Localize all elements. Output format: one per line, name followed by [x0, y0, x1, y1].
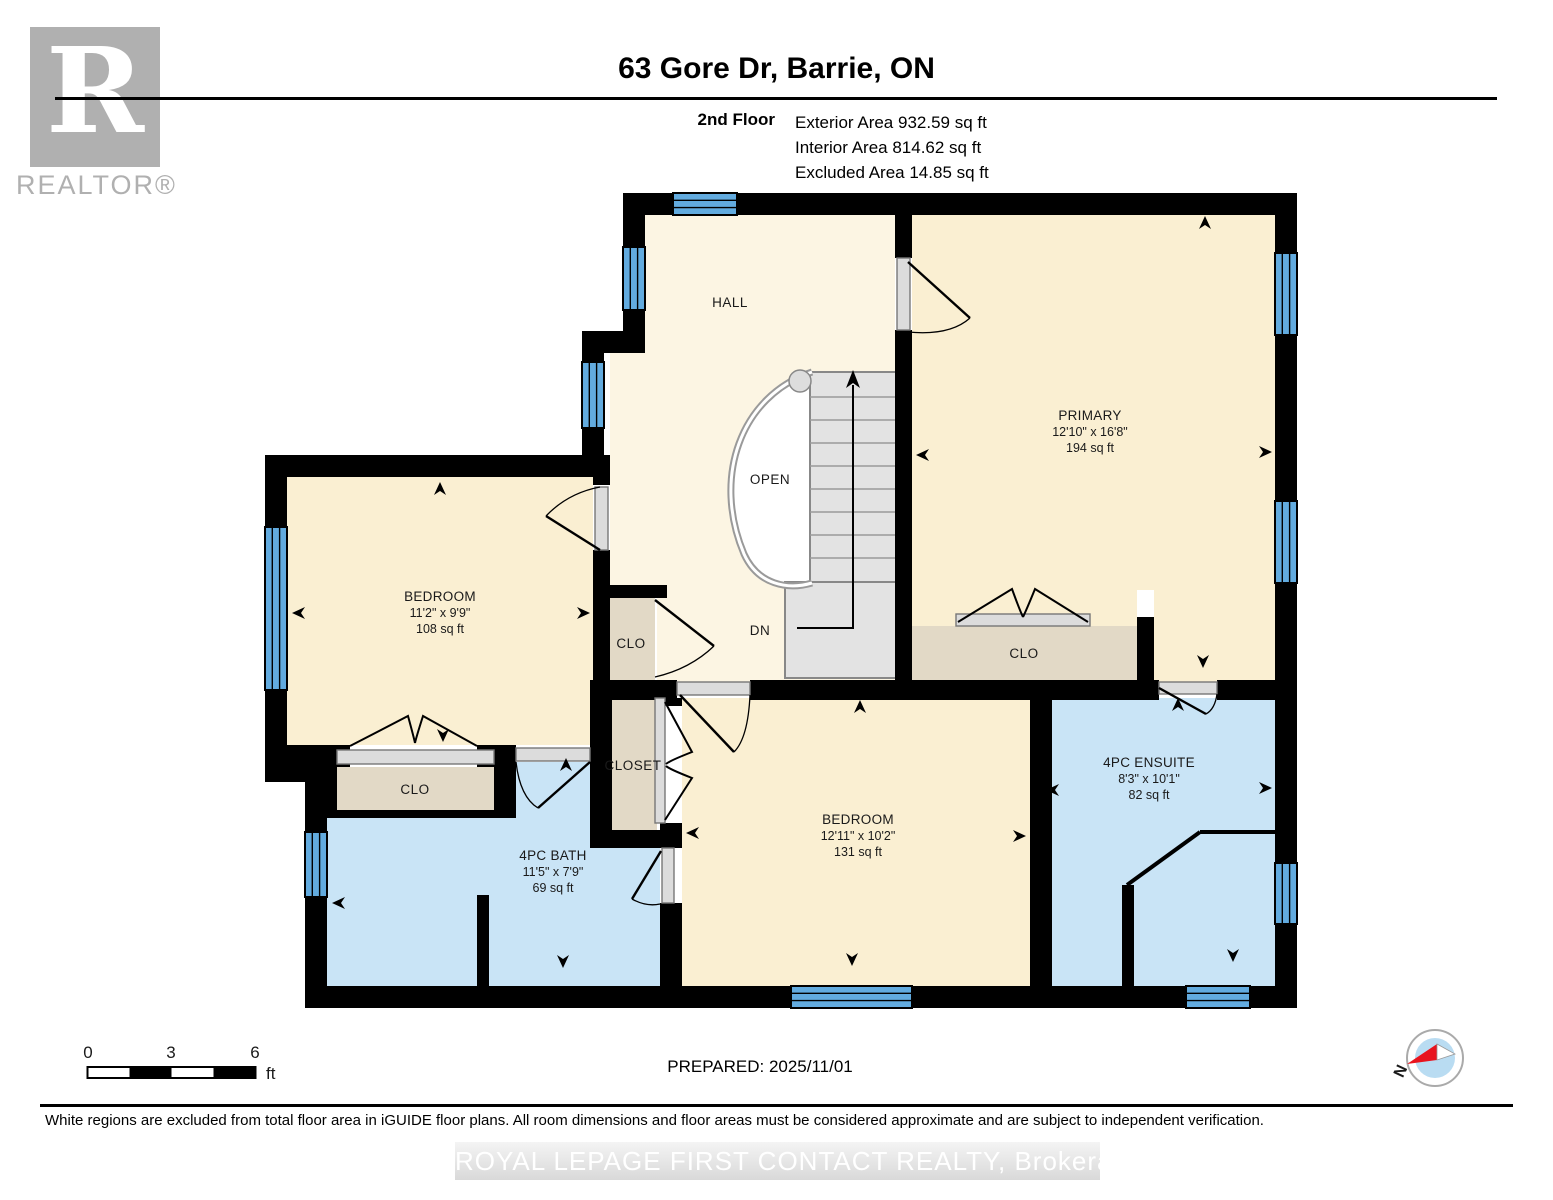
- window: [1275, 501, 1297, 583]
- room-ensuite-area: 82 sq ft: [1129, 788, 1171, 802]
- room-bedroom-left-dims: 11'2" x 9'9": [410, 606, 471, 620]
- page-title: 63 Gore Dr, Barrie, ON: [0, 52, 1553, 86]
- window: [1186, 986, 1250, 1008]
- scale-tick-0: 0: [83, 1043, 92, 1062]
- scale-tick-3: 3: [166, 1043, 175, 1062]
- window: [1275, 253, 1297, 335]
- title-divider: [55, 97, 1497, 100]
- hall-label: HALL: [712, 295, 748, 310]
- clo-left-label: CLO: [400, 782, 429, 797]
- room-bath-area: 69 sq ft: [533, 881, 575, 895]
- closet-label: CLOSET: [604, 758, 661, 773]
- scale-bar: 0 3 6 ft: [80, 1042, 300, 1092]
- disclaimer-text: White regions are excluded from total fl…: [45, 1112, 1515, 1129]
- room-primary-name: PRIMARY: [1058, 408, 1121, 423]
- floor-plan-drawing: HALL OPEN DN PRIMARY 12'10" x 16'8" 194 …: [250, 185, 1300, 1015]
- room-primary-dims: 12'10" x 16'8": [1052, 425, 1128, 439]
- brokerage-watermark: ROYAL LEPAGE FIRST CONTACT REALTY, Broke…: [455, 1142, 1100, 1180]
- floor-label: 2nd Floor: [555, 110, 775, 130]
- room-ensuite-dims: 8'3" x 10'1": [1118, 772, 1180, 786]
- interior-area: Interior Area 814.62 sq ft: [795, 135, 1115, 160]
- room-primary-area: 194 sq ft: [1066, 441, 1114, 455]
- room-ensuite-name: 4PC ENSUITE: [1103, 755, 1195, 770]
- excluded-area: Excluded Area 14.85 sq ft: [795, 160, 1115, 185]
- stair-newel: [789, 370, 811, 392]
- footer-divider: [40, 1104, 1513, 1107]
- window: [305, 832, 327, 897]
- room-bath-floor: [327, 818, 590, 986]
- room-ensuite-floor: [1052, 698, 1275, 986]
- prepared-date: PREPARED: 2025/11/01: [600, 1057, 920, 1077]
- dn-label: DN: [750, 623, 771, 638]
- room-bedroom-left-area: 108 sq ft: [416, 622, 464, 636]
- exterior-area: Exterior Area 932.59 sq ft: [795, 110, 1115, 135]
- clo-center-label: CLO: [616, 636, 645, 651]
- stair-landing: [785, 582, 897, 678]
- window: [673, 193, 737, 215]
- compass-icon: N: [1390, 1015, 1480, 1105]
- room-bedroom-bottom-dims: 12'11" x 10'2": [821, 829, 896, 843]
- room-bedroom-bottom-area: 131 sq ft: [834, 845, 882, 859]
- realtor-logo-text: REALTOR®: [16, 170, 186, 201]
- realtor-logo-r: R: [46, 21, 144, 160]
- floor-plan-page: { "header": { "title": "63 Gore Dr, Barr…: [0, 0, 1553, 1200]
- room-bath-name: 4PC BATH: [519, 848, 586, 863]
- scale-unit: ft: [266, 1064, 276, 1083]
- window: [265, 527, 287, 690]
- window: [623, 247, 645, 310]
- window: [791, 986, 912, 1008]
- room-bath-dims: 11'5" x 7'9": [523, 865, 584, 879]
- open-label: OPEN: [750, 472, 790, 487]
- area-summary: Exterior Area 932.59 sq ft Interior Area…: [795, 110, 1115, 185]
- scale-tick-6: 6: [250, 1043, 259, 1062]
- room-bedroom-bottom-name: BEDROOM: [822, 812, 894, 827]
- room-bedroom-left-name: BEDROOM: [404, 589, 476, 604]
- window: [582, 362, 604, 428]
- clo-primary-label: CLO: [1009, 646, 1038, 661]
- window: [1275, 863, 1297, 924]
